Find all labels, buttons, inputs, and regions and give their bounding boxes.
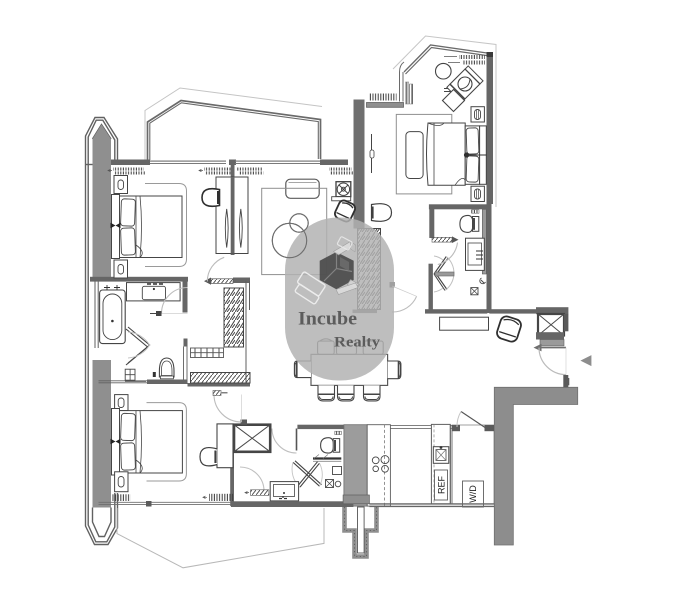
svg-text:Realty: Realty xyxy=(334,335,381,351)
svg-text:REF: REF xyxy=(437,475,447,494)
svg-text:Incube: Incube xyxy=(298,309,357,330)
svg-text:W/D: W/D xyxy=(468,485,478,503)
